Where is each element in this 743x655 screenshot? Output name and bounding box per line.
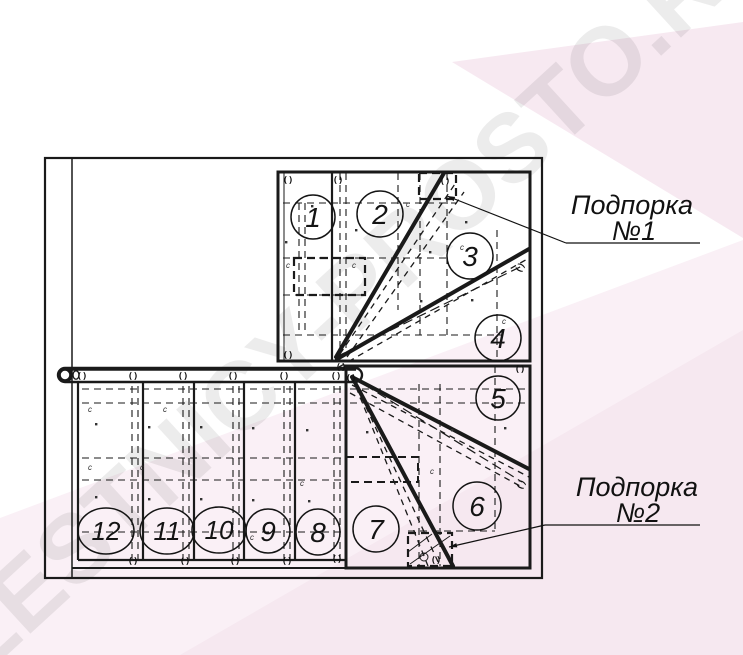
step-number-6: 6 (469, 491, 485, 522)
svg-text:c: c (352, 261, 356, 270)
fastener-icon: () (180, 557, 191, 567)
fastener-icon: () (230, 557, 241, 567)
svg-text:c: c (140, 463, 144, 472)
fastener-icon: () (440, 177, 451, 187)
svg-text:c: c (88, 405, 92, 414)
step-number-2: 2 (371, 199, 388, 230)
fastener-icon: () (332, 555, 343, 565)
fastener-icon: () (178, 372, 189, 382)
fastener-icon: () (515, 365, 526, 375)
step-number-8: 8 (310, 517, 326, 548)
fastener-icon: () (128, 557, 139, 567)
step-number-5: 5 (490, 383, 506, 414)
fastener-icon: () (128, 372, 139, 382)
step-number-4: 4 (490, 323, 506, 354)
fastener-icon: () (331, 372, 342, 382)
step-number-12: 12 (92, 516, 121, 546)
fastener-icon: () (228, 372, 239, 382)
svg-text:c: c (88, 463, 92, 472)
fastener-icon: () (514, 261, 528, 275)
step-number-9: 9 (260, 516, 276, 547)
fastener-icon: () (283, 176, 294, 186)
step-number-10: 10 (205, 515, 234, 545)
fastener-icon: () (333, 176, 344, 186)
svg-text:c: c (163, 405, 167, 414)
step-number-3: 3 (462, 241, 478, 272)
svg-text:c: c (286, 261, 290, 270)
staircase-plan-drawing: LESTNICY-PROSTO.RU (0, 0, 743, 655)
plan-svg: LESTNICY-PROSTO.RU (0, 0, 743, 655)
svg-text:c: c (406, 200, 410, 209)
svg-text:c: c (430, 467, 434, 476)
fastener-icon: () (77, 372, 88, 382)
fastener-icon: () (346, 374, 357, 384)
svg-text:c: c (250, 533, 254, 542)
bar-end-cap-icon (59, 369, 71, 381)
fastener-icon: () (282, 557, 293, 567)
support-1-number: №1 (612, 216, 656, 246)
support-2-number: №2 (616, 498, 660, 528)
fastener-icon: () (431, 556, 442, 566)
fastener-icon: () (336, 363, 347, 373)
svg-text:c: c (300, 479, 304, 488)
step-number-1: 1 (305, 202, 321, 233)
step-number-11: 11 (154, 516, 181, 546)
step-number-7: 7 (368, 514, 385, 545)
fastener-icon: () (283, 351, 294, 361)
fastener-icon: () (279, 372, 290, 382)
